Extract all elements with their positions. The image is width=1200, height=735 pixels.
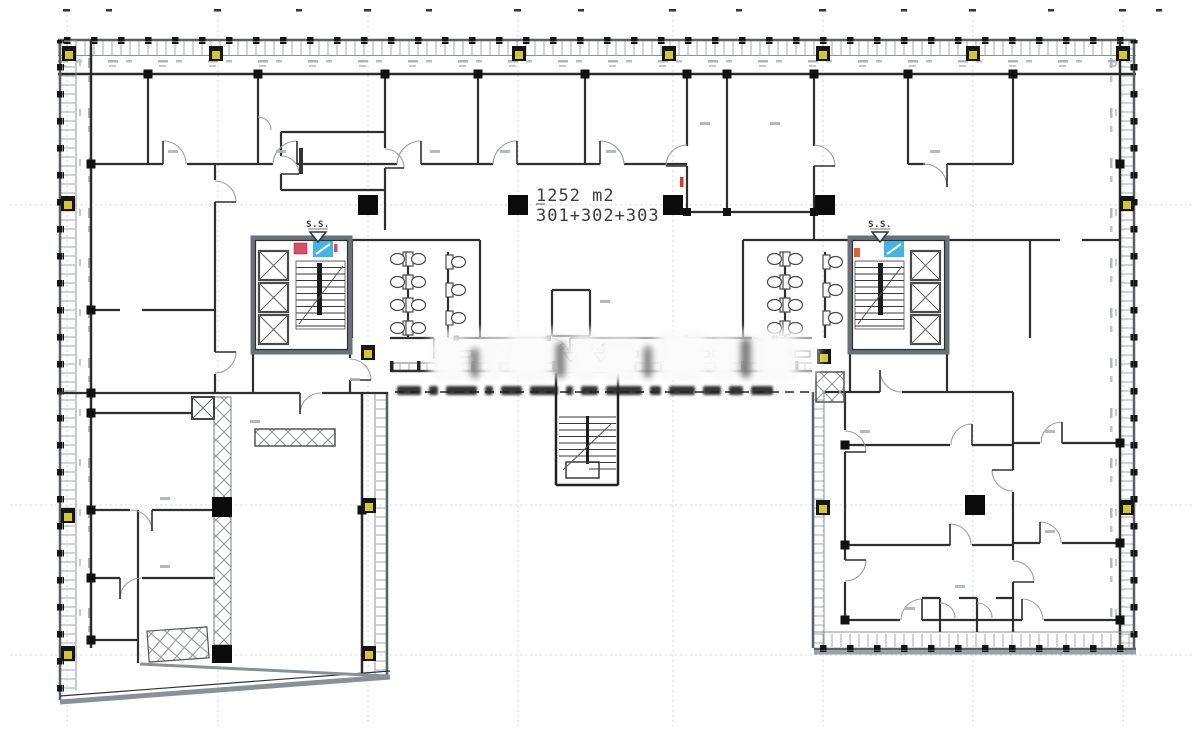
- stair-elevator-core-right: [850, 238, 947, 352]
- vertical-truss: [214, 397, 231, 645]
- beam-truss: [255, 429, 335, 446]
- floor-plan-page: 1252 m2 301+302+303 S.S. S.S. S.S. S.S.: [0, 0, 1200, 735]
- dimension-ticks-top: [63, 9, 1162, 12]
- red-mark: [680, 177, 684, 187]
- area-label: 1252 m2: [536, 186, 615, 206]
- pantry-counter: [299, 148, 303, 174]
- braced-elements: [147, 372, 844, 662]
- blurred-watermark-line1: [430, 328, 820, 378]
- hydrant-icon: [854, 248, 860, 257]
- section-marker-label: S.S.: [306, 220, 330, 230]
- section-marker-label: S.S.: [868, 220, 892, 230]
- stair-elevator-core-left: [253, 238, 350, 352]
- hatched-room: [147, 627, 209, 662]
- unit-label: 301+302+303: [536, 206, 660, 226]
- fire-hose-icon: [294, 243, 307, 254]
- blurred-watermark-line2: [397, 384, 817, 397]
- diagonal-facade: [60, 677, 390, 702]
- toilet-fixtures: [391, 252, 843, 335]
- ramp-hatch: [816, 372, 844, 402]
